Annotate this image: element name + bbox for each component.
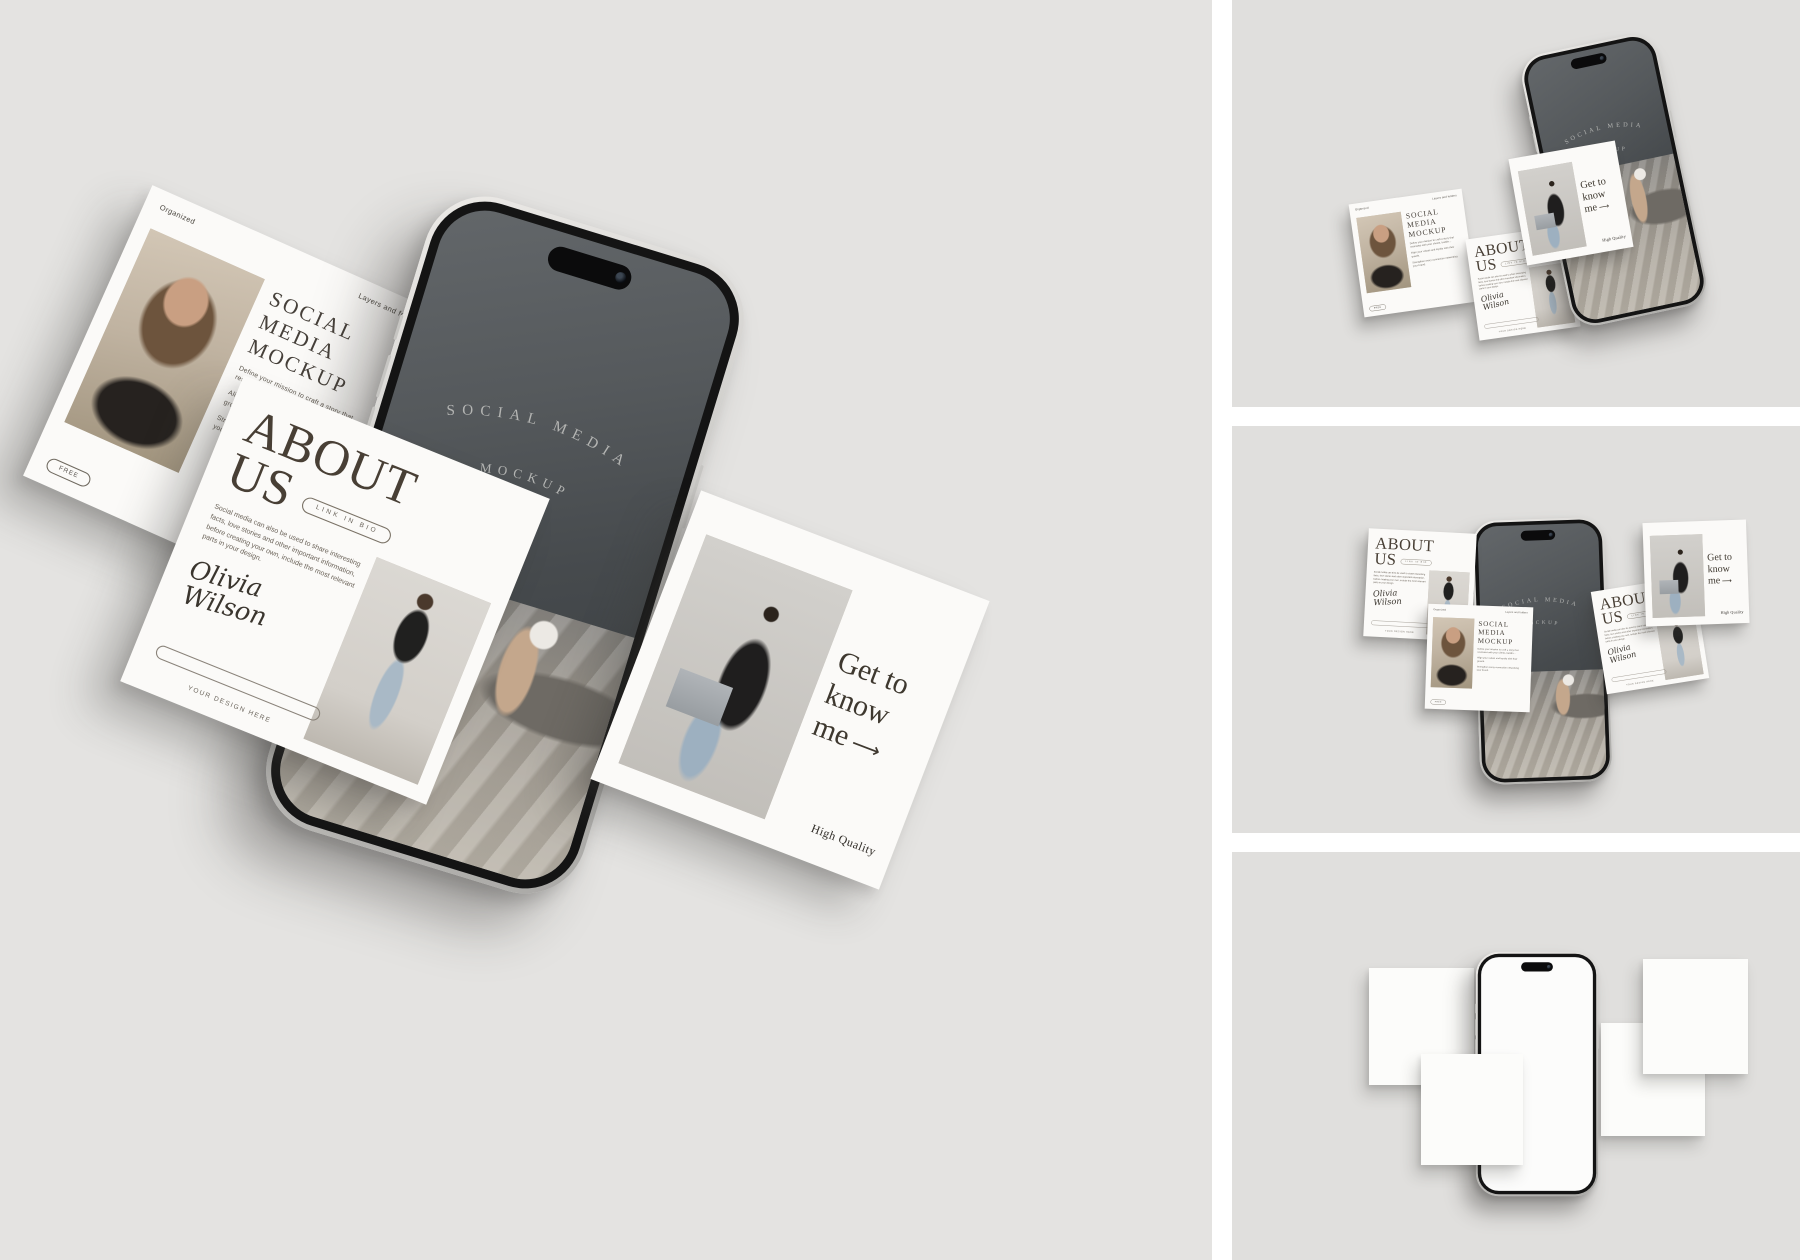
know-title-line1: Get to <box>1707 551 1732 563</box>
your-design-here-label: YOUR DESIGN HERE <box>1371 629 1429 634</box>
about-title: ABOUT USLINK IN BIO <box>1367 528 1477 571</box>
free-pill-button: FREE <box>1369 304 1386 312</box>
mute-switch <box>1475 1004 1476 1014</box>
social-post-card-mini: Organized Layers and folders SOCIAL MEDI… <box>1349 189 1478 318</box>
high-quality-label: High Quality <box>1602 234 1626 242</box>
know-title-line2: know <box>1707 563 1730 575</box>
panel-main-preview: Organized Layers and folders SOCIAL MEDI… <box>0 0 1212 1260</box>
post-title: SOCIAL MEDIA MOCKUP <box>1405 206 1454 240</box>
post-text-column: SOCIAL MEDIA MOCKUP Define your mission … <box>1476 614 1525 690</box>
blank-post-card <box>1421 1054 1523 1165</box>
post-paragraph: Align your values and loyalty with their… <box>1477 656 1523 664</box>
social-post-card-mini: Organized Layers and folders SOCIAL MEDI… <box>1425 604 1534 713</box>
dynamic-island <box>1570 52 1608 70</box>
woman-laptop-selfie-photo <box>1650 534 1705 618</box>
front-camera-dot <box>1549 533 1554 538</box>
volume-up-button <box>1475 1019 1476 1035</box>
about-title-line2: US <box>1601 607 1624 628</box>
link-in-bio-pill: LINK IN BIO <box>299 495 394 547</box>
design-placeholder-bar <box>1371 620 1429 628</box>
blank-post-card <box>1643 959 1748 1074</box>
about-paragraph: Social media can also be used to share i… <box>1373 570 1428 587</box>
post-paragraph: Define your mission to craft a story tha… <box>1477 648 1523 656</box>
woman-portrait-photo <box>1356 212 1411 294</box>
screen-title-line1: SOCIAL MEDIA <box>442 386 638 474</box>
right-arrow-icon: ⟶ <box>1722 577 1732 585</box>
woman-laptop-selfie-photo <box>1518 162 1587 256</box>
front-camera-dot <box>614 271 628 285</box>
signature: Olivia Wilson <box>1607 640 1643 665</box>
dynamic-island <box>1521 530 1556 541</box>
panel-top-preview: Organized Layers and folders SOCIAL MEDI… <box>1232 0 1800 407</box>
panel-middle-preview: SOCIAL MEDIA MOCKUP ABOUT USLINK IN BIO … <box>1232 426 1800 833</box>
panel-bottom-blank-preview <box>1232 852 1800 1260</box>
power-button <box>1598 1024 1599 1048</box>
post-body: SOCIAL MEDIA MOCKUP Define your mission … <box>1425 611 1533 691</box>
free-pill-button: FREE <box>44 456 93 489</box>
right-arrow-icon: ⟶ <box>1598 202 1610 212</box>
front-camera-dot <box>1599 55 1604 60</box>
svg-text:SOCIAL MEDIA: SOCIAL MEDIA <box>442 386 638 474</box>
signature: Olivia Wilson <box>1480 288 1515 312</box>
dynamic-island <box>1521 962 1553 971</box>
know-title-line3: me <box>1584 201 1599 215</box>
free-pill-button: FREE <box>1430 699 1446 704</box>
get-to-know-post-card-mini: Get to know me⟶ High Quality <box>1508 140 1633 265</box>
about-title-line2: US <box>1374 549 1397 568</box>
link-in-bio-pill: LINK IN BIO <box>1400 559 1431 566</box>
dynamic-island <box>545 244 635 293</box>
post-text-column: SOCIAL MEDIA MOCKUP Define your mission … <box>1404 199 1465 287</box>
front-camera-dot <box>1547 965 1551 969</box>
know-title: Get to know me⟶ <box>1707 551 1733 587</box>
get-to-know-post-card-mini: Get to know me⟶ High Quality <box>1642 519 1749 626</box>
right-arrow-icon: ⟶ <box>848 731 884 764</box>
post-title: SOCIAL MEDIA MOCKUP <box>1478 619 1521 646</box>
know-title-line3: me <box>1708 575 1721 586</box>
signature: Olivia Wilson <box>1373 588 1408 607</box>
woman-portrait-photo <box>1431 617 1475 688</box>
know-title: Get to know me⟶ <box>1579 175 1611 215</box>
organized-label: Organized <box>1433 608 1446 611</box>
high-quality-label: High Quality <box>809 823 877 859</box>
post-body: SOCIAL MEDIA MOCKUP Define your mission … <box>1350 196 1474 294</box>
high-quality-label: High Quality <box>1721 610 1744 615</box>
post-paragraph: Strengthen every connection networking y… <box>1477 665 1523 673</box>
about-title-line2: US <box>1475 255 1498 275</box>
